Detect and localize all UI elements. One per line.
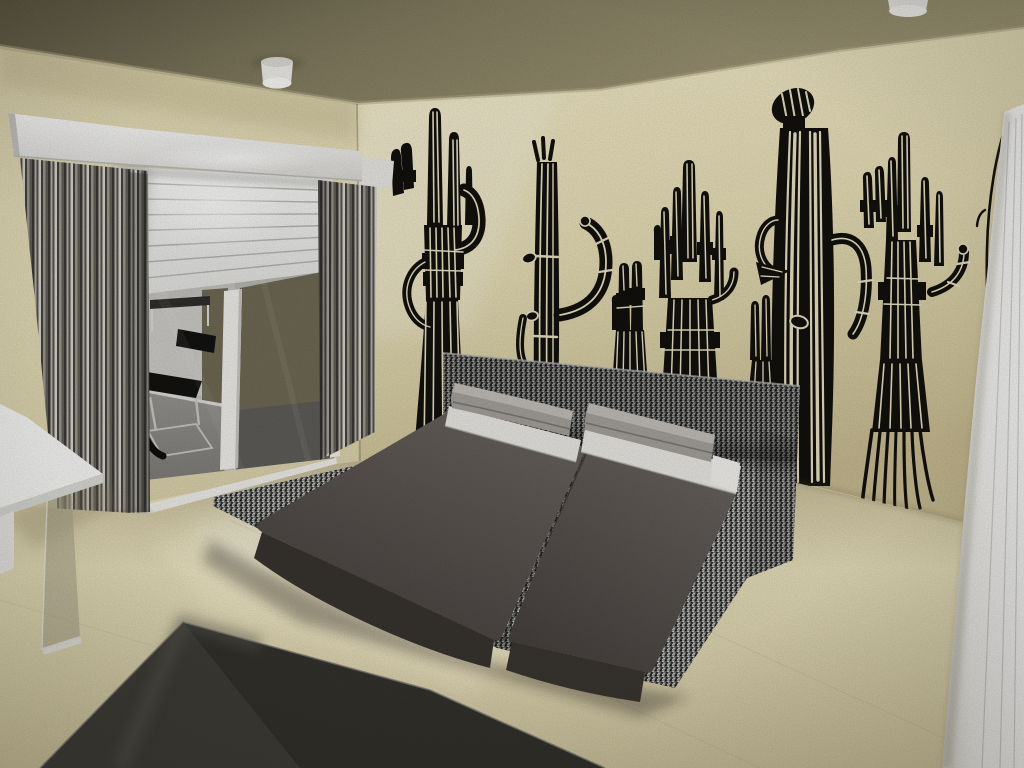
bedroom-render: Modern bedroom 3D rendering with black s…	[0, 0, 1024, 768]
vignette	[0, 0, 1024, 768]
render-canvas	[0, 0, 1024, 768]
